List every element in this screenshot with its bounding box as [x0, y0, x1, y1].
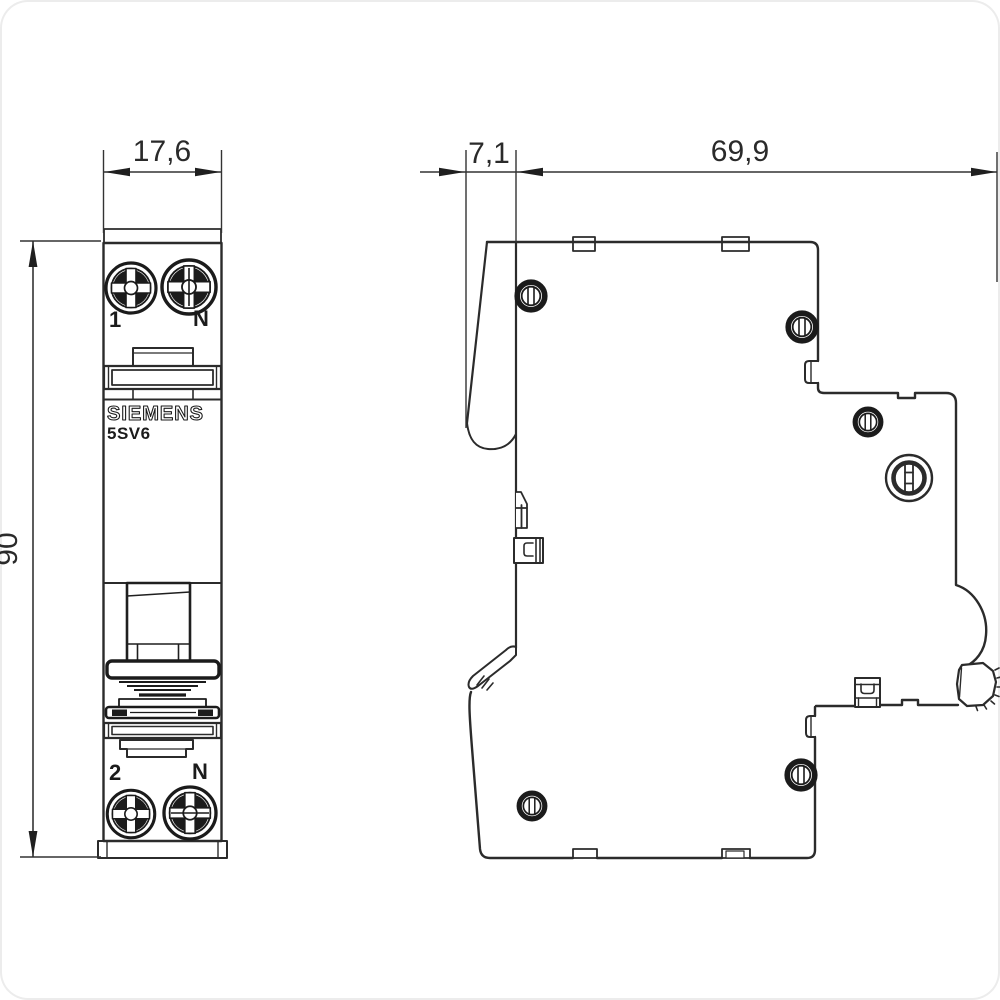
- side-rivet-bottom-front-icon: [519, 793, 545, 819]
- side-rivet-mid-back-icon: [855, 409, 881, 435]
- dimension-height: 90: [0, 241, 101, 857]
- side-front-clamp-block: [514, 538, 543, 563]
- screw-terminal-2-icon: [107, 790, 155, 838]
- dim-height-value: 90: [0, 532, 24, 565]
- model-text: 5SV6: [107, 424, 151, 443]
- terminal-label-2: 2: [109, 760, 121, 785]
- side-front-recess-arc: [467, 423, 516, 449]
- side-bottom-clip-1: [573, 849, 597, 858]
- dimension-handle-depth: 7,1: [420, 137, 516, 428]
- side-rivet-bottom-back-icon: [787, 761, 815, 789]
- front-bottom-foot-band: [98, 841, 227, 858]
- side-top-clip-2: [722, 237, 749, 251]
- dim-body-depth-value: 69,9: [711, 135, 769, 168]
- front-view-drawing: 1 N SIEMENS 5SV6: [98, 229, 227, 858]
- side-front-slant: [467, 242, 487, 423]
- side-top-clip-1: [573, 237, 595, 251]
- side-front-hook: [469, 646, 517, 690]
- front-top-clip-band: [104, 229, 221, 243]
- side-view-drawing: [467, 237, 1000, 858]
- dim-front-width-value: 17,6: [133, 135, 191, 168]
- dim-handle-depth-value: 7,1: [468, 137, 510, 170]
- brand-text: SIEMENS: [107, 403, 204, 425]
- din-rail-clip: [855, 678, 880, 707]
- dimension-body-depth: 69,9: [516, 135, 997, 282]
- side-rivet-top-back-icon: [788, 313, 816, 341]
- technical-drawing-page: 1 N SIEMENS 5SV6: [0, 0, 1000, 1000]
- side-outline-lower: [469, 692, 958, 858]
- terminal-label-1: 1: [109, 307, 121, 332]
- side-axle-screw-icon: [886, 455, 932, 501]
- drawing-canvas: 1 N SIEMENS 5SV6: [0, 0, 1000, 1000]
- side-front-latch: [516, 492, 527, 528]
- side-rivet-top-front-icon: [517, 282, 545, 310]
- screw-terminal-1-icon: [106, 263, 156, 313]
- terminal-label-n-top: N: [193, 306, 209, 331]
- knurled-knob: [957, 663, 1000, 711]
- terminal-label-n-bottom: N: [192, 759, 208, 784]
- dimension-front-width: 17,6: [104, 135, 222, 233]
- toggle-lever: [127, 583, 190, 663]
- front-upper-tab: [133, 348, 193, 366]
